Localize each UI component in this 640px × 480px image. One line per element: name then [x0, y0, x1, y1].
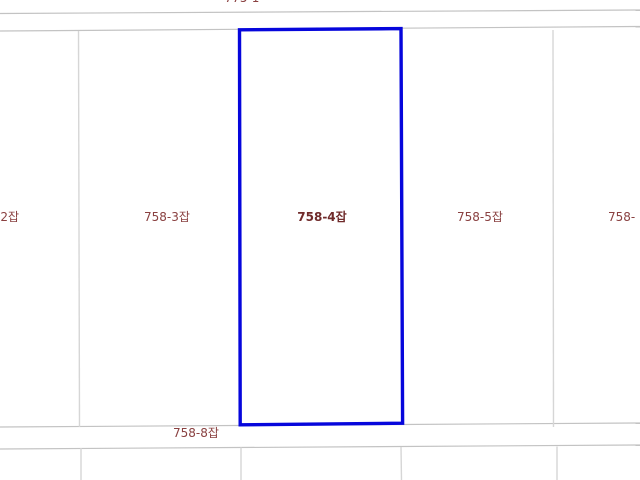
parcel-region-758-right[interactable]: [554, 28, 640, 425]
map-canvas[interactable]: 775-1 -2잡 758-3잡 758-4잡 758-5잡 758- 758-…: [0, 0, 640, 480]
parcel-region-758-2[interactable]: [0, 31, 78, 427]
road-region-758-8[interactable]: [0, 425, 640, 447]
parcel-region-758-4-selected[interactable]: [240, 30, 401, 424]
parcel-region-758-5[interactable]: [403, 29, 553, 425]
road-edge-top-outer: [0, 10, 640, 14]
boundary-lower-3: [401, 447, 402, 480]
parcel-region-758-3[interactable]: [79, 30, 239, 427]
